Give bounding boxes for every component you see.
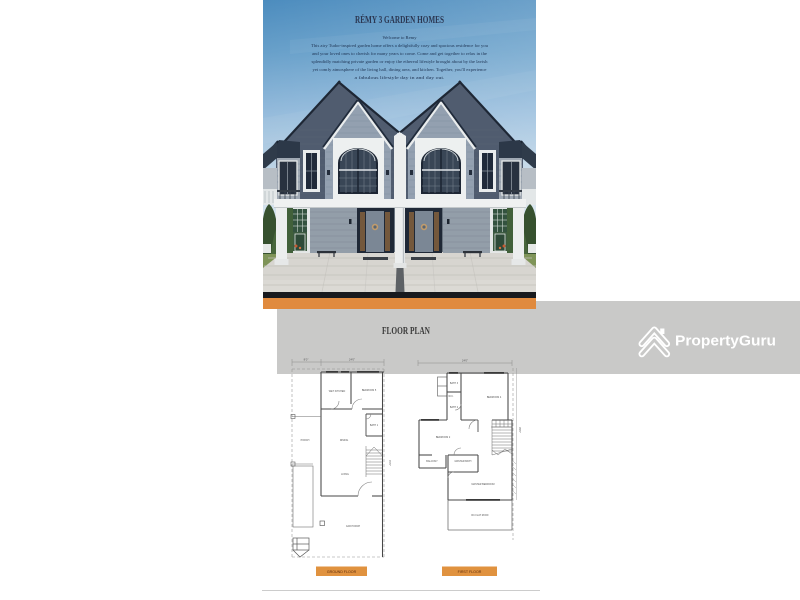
svg-text:and your loved ones to cherish: and your loved ones to cherish for many … [312, 51, 487, 56]
svg-text:PropertyGuru: PropertyGuru [675, 334, 776, 350]
svg-text:BATH 2: BATH 2 [450, 406, 459, 409]
svg-text:RÉMY 3 GARDEN HOMES: RÉMY 3 GARDEN HOMES [355, 14, 444, 26]
svg-text:BEDROOM 5: BEDROOM 5 [362, 389, 377, 392]
svg-text:BEDROOM 4: BEDROOM 4 [487, 396, 502, 399]
svg-text:GROUND FLOOR: GROUND FLOOR [327, 570, 357, 574]
svg-text:DINING: DINING [340, 439, 349, 442]
svg-text:BALCONY: BALCONY [426, 460, 438, 463]
svg-text:24'0": 24'0" [349, 358, 355, 362]
svg-text:45'0": 45'0" [518, 427, 522, 433]
svg-text:MASTER BATH: MASTER BATH [455, 460, 472, 463]
svg-text:W.C.: W.C. [448, 395, 454, 398]
svg-text:PORCH: PORCH [301, 439, 310, 442]
svg-text:BEDROOM 2: BEDROOM 2 [436, 436, 451, 439]
svg-text:BATH 1: BATH 1 [370, 424, 379, 427]
svg-text:RC FLAT ROOF: RC FLAT ROOF [471, 514, 489, 517]
svg-text:FLOOR PLAN: FLOOR PLAN [382, 325, 430, 337]
svg-text:Welcome to Remy: Welcome to Remy [382, 35, 417, 40]
svg-text:LIVING: LIVING [341, 473, 349, 476]
svg-text:splendidly matching private ga: splendidly matching private garden or en… [312, 59, 489, 64]
svg-text:MASTER BEDROOM: MASTER BEDROOM [472, 483, 495, 486]
svg-text:This airy Tudor-inspired garde: This airy Tudor-inspired garden home off… [311, 43, 489, 48]
svg-text:a fabulous lifestyle day in an: a fabulous lifestyle day in and day out. [355, 75, 445, 80]
svg-text:70'0": 70'0" [388, 460, 392, 466]
svg-text:8'0": 8'0" [304, 358, 309, 362]
svg-text:24'0": 24'0" [462, 359, 468, 363]
svg-text:FIRST FLOOR: FIRST FLOOR [458, 570, 482, 574]
svg-text:CAR PORCH: CAR PORCH [346, 525, 361, 528]
svg-text:WET KITCHEN: WET KITCHEN [329, 390, 346, 393]
svg-text:BATH 3: BATH 3 [450, 382, 459, 385]
